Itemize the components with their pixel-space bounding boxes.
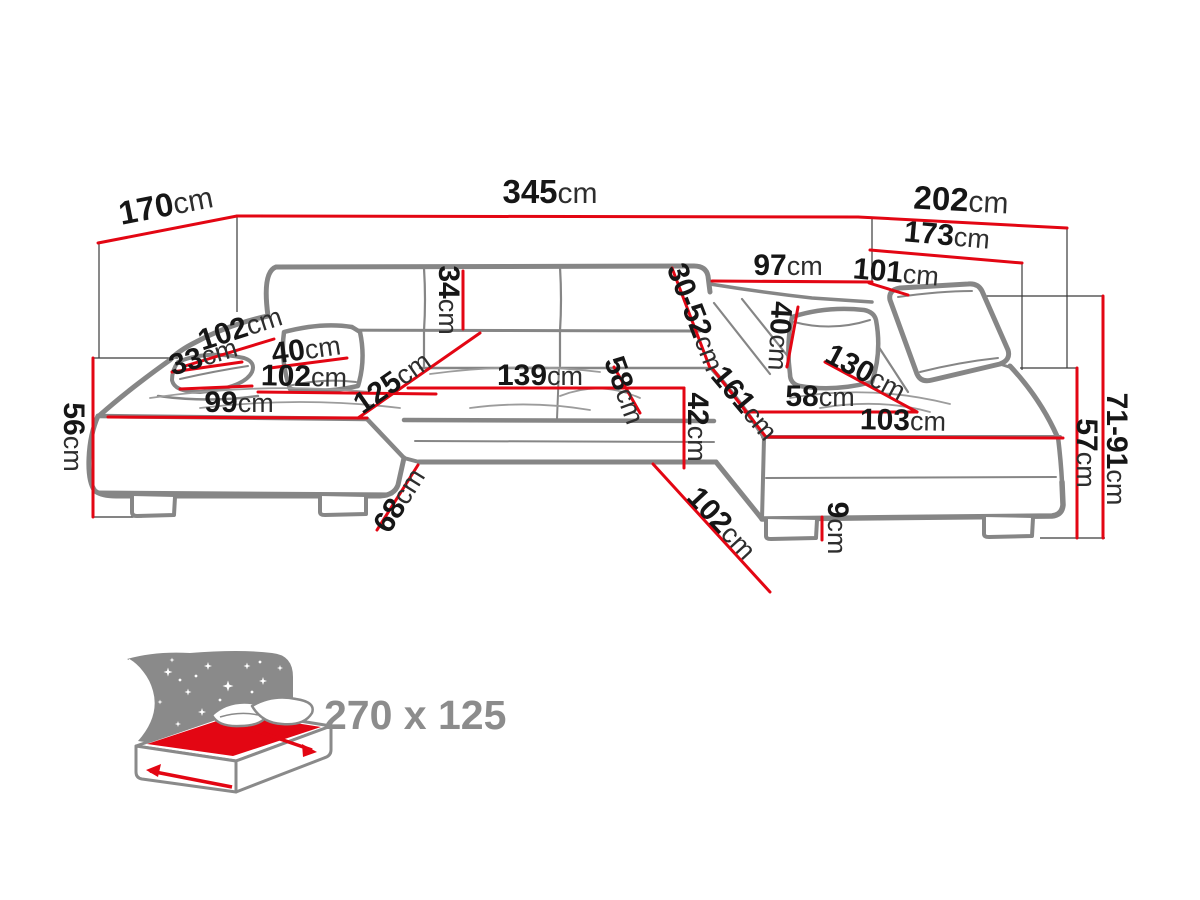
dim-label-34: 34cm	[432, 265, 465, 334]
diagram-canvas: 170cm 345cm 202cm 173cm 97cm 101cm 34cm …	[0, 0, 1200, 900]
dim-label-71-91: 71-91cm	[1100, 393, 1133, 506]
dim-label-102-inner: 102cm	[680, 481, 763, 566]
sofa-dimensions-diagram: 170cm 345cm 202cm 173cm 97cm 101cm 34cm …	[0, 0, 1200, 900]
dim-label-139: 139cm	[497, 359, 583, 392]
dim-label-42: 42cm	[681, 392, 714, 461]
dim-label-202: 202cm	[913, 179, 1010, 221]
dim-label-173: 173cm	[903, 215, 992, 255]
sleeping-area-label: 270 x 125	[324, 692, 506, 738]
dim-label-161: 161cm	[704, 360, 785, 447]
dim-label-58-right: 58cm	[785, 380, 854, 413]
dim-label-97: 97cm	[753, 249, 822, 282]
dim-label-57: 57cm	[1070, 418, 1103, 487]
sleeping-function-icon: 270 x 125	[127, 651, 506, 792]
dim-label-68: 68cm	[367, 462, 432, 538]
dim-line-103	[766, 437, 1063, 438]
dim-label-58-mid: 58cm	[597, 352, 652, 428]
dim-label-40-right: 40cm	[761, 300, 798, 371]
dim-label-56: 56cm	[57, 402, 90, 471]
dim-label-101: 101cm	[852, 252, 941, 292]
dim-label-30-52: 30-52cm	[660, 259, 731, 376]
dim-label-9: 9cm	[821, 502, 854, 555]
dim-label-345: 345cm	[502, 173, 597, 210]
dim-label-103: 103cm	[860, 403, 947, 437]
dim-line-345	[237, 216, 858, 217]
dim-label-99: 99cm	[204, 386, 273, 419]
dim-line-97	[712, 281, 872, 282]
